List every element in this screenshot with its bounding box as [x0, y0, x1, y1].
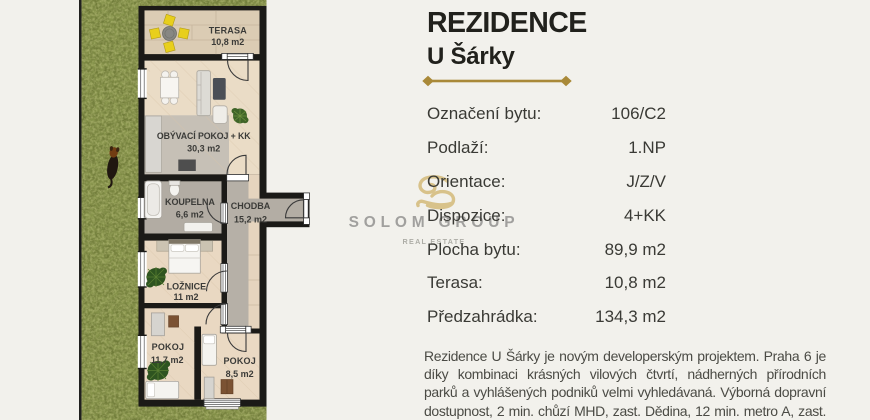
svg-text:10,8 m2: 10,8 m2	[211, 37, 244, 47]
svg-text:CHODBA: CHODBA	[231, 201, 271, 211]
svg-text:KOUPELNA: KOUPELNA	[165, 197, 215, 207]
svg-text:8,5 m2: 8,5 m2	[226, 369, 254, 379]
svg-text:POKOJ: POKOJ	[152, 342, 185, 352]
svg-text:POKOJ: POKOJ	[223, 356, 256, 366]
svg-text:LOŽNICE: LOŽNICE	[167, 280, 207, 291]
svg-text:11 m2: 11 m2	[173, 292, 198, 302]
svg-text:30,3 m2: 30,3 m2	[187, 144, 220, 154]
svg-text:11,7 m2: 11,7 m2	[151, 355, 184, 365]
svg-text:15,2 m2: 15,2 m2	[234, 214, 267, 224]
svg-text:TERASA: TERASA	[209, 25, 248, 35]
svg-text:OBÝVACÍ POKOJ + KK: OBÝVACÍ POKOJ + KK	[157, 130, 251, 141]
svg-text:6,6 m2: 6,6 m2	[176, 209, 204, 219]
